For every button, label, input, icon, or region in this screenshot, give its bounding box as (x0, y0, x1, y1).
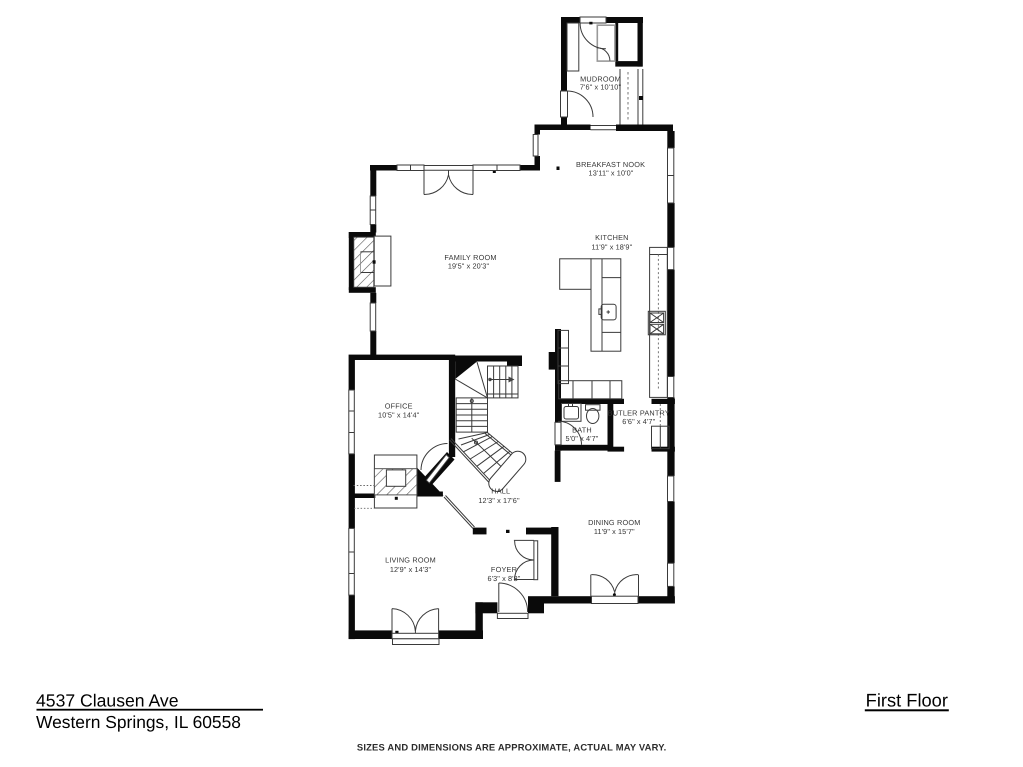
svg-text:KITCHEN: KITCHEN (595, 233, 628, 242)
svg-text:12'3" x 17'6": 12'3" x 17'6" (478, 496, 520, 505)
svg-text:HALL: HALL (491, 487, 510, 496)
svg-text:LIVING ROOM: LIVING ROOM (385, 556, 436, 565)
svg-text:5'0" x 4'7": 5'0" x 4'7" (565, 434, 598, 443)
svg-text:7'6" x 10'10": 7'6" x 10'10" (580, 83, 622, 92)
svg-text:6'6" x 4'7": 6'6" x 4'7" (622, 417, 655, 426)
svg-text:19'5" x 20'3": 19'5" x 20'3" (448, 262, 490, 271)
svg-text:13'11" x 10'0": 13'11" x 10'0" (589, 169, 634, 178)
svg-text:12'9" x 14'3": 12'9" x 14'3" (390, 565, 432, 574)
svg-text:SIZES AND DIMENSIONS ARE APPRO: SIZES AND DIMENSIONS ARE APPROXIMATE, AC… (357, 742, 667, 753)
svg-text:10'5" x 14'4": 10'5" x 14'4" (378, 411, 420, 420)
svg-text:6'3" x 8'8": 6'3" x 8'8" (487, 574, 520, 583)
svg-text:FOYER: FOYER (491, 565, 517, 574)
svg-text:OFFICE: OFFICE (385, 402, 413, 411)
svg-text:11'9" x 18'9": 11'9" x 18'9" (592, 243, 633, 252)
svg-text:11'9" x 15'7": 11'9" x 15'7" (594, 527, 635, 536)
svg-text:4537 Clausen Ave: 4537 Clausen Ave (36, 691, 179, 711)
svg-text:DINING ROOM: DINING ROOM (588, 518, 640, 527)
svg-text:First Floor: First Floor (866, 690, 948, 711)
svg-text:Western Springs, IL 60558: Western Springs, IL 60558 (36, 712, 241, 732)
